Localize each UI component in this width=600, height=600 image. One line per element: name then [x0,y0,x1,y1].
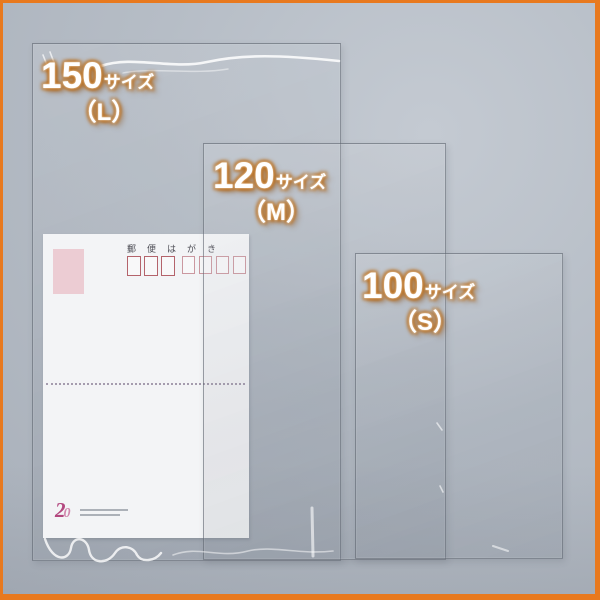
size-label-120-M: 120 サイズ （M） [213,157,339,225]
size-letter: （M） [213,201,339,225]
size-letter: （S） [362,311,488,335]
postcard-logo-digit: 0 [64,507,71,521]
stamp-area [53,249,84,294]
size-label-100-S: 100 サイズ （S） [362,267,488,335]
size-suffix: サイズ [276,174,327,191]
size-suffix: サイズ [425,284,476,301]
size-letter: （L） [41,101,167,125]
size-number: 100 [362,267,424,304]
postal-code-box [161,256,175,276]
size-label-150-L: 150 サイズ （L） [41,57,167,125]
postal-code-box [127,256,141,276]
postal-code-box [182,256,195,274]
size-number: 150 [41,57,103,94]
postcard-logo: 2 0 [55,500,128,521]
postcard-logo-fine-print [80,509,128,519]
size-number: 120 [213,157,275,194]
postal-code-box [144,256,158,276]
product-photo: 郵便はがき 2 0 [0,0,600,600]
size-suffix: サイズ [104,74,155,91]
